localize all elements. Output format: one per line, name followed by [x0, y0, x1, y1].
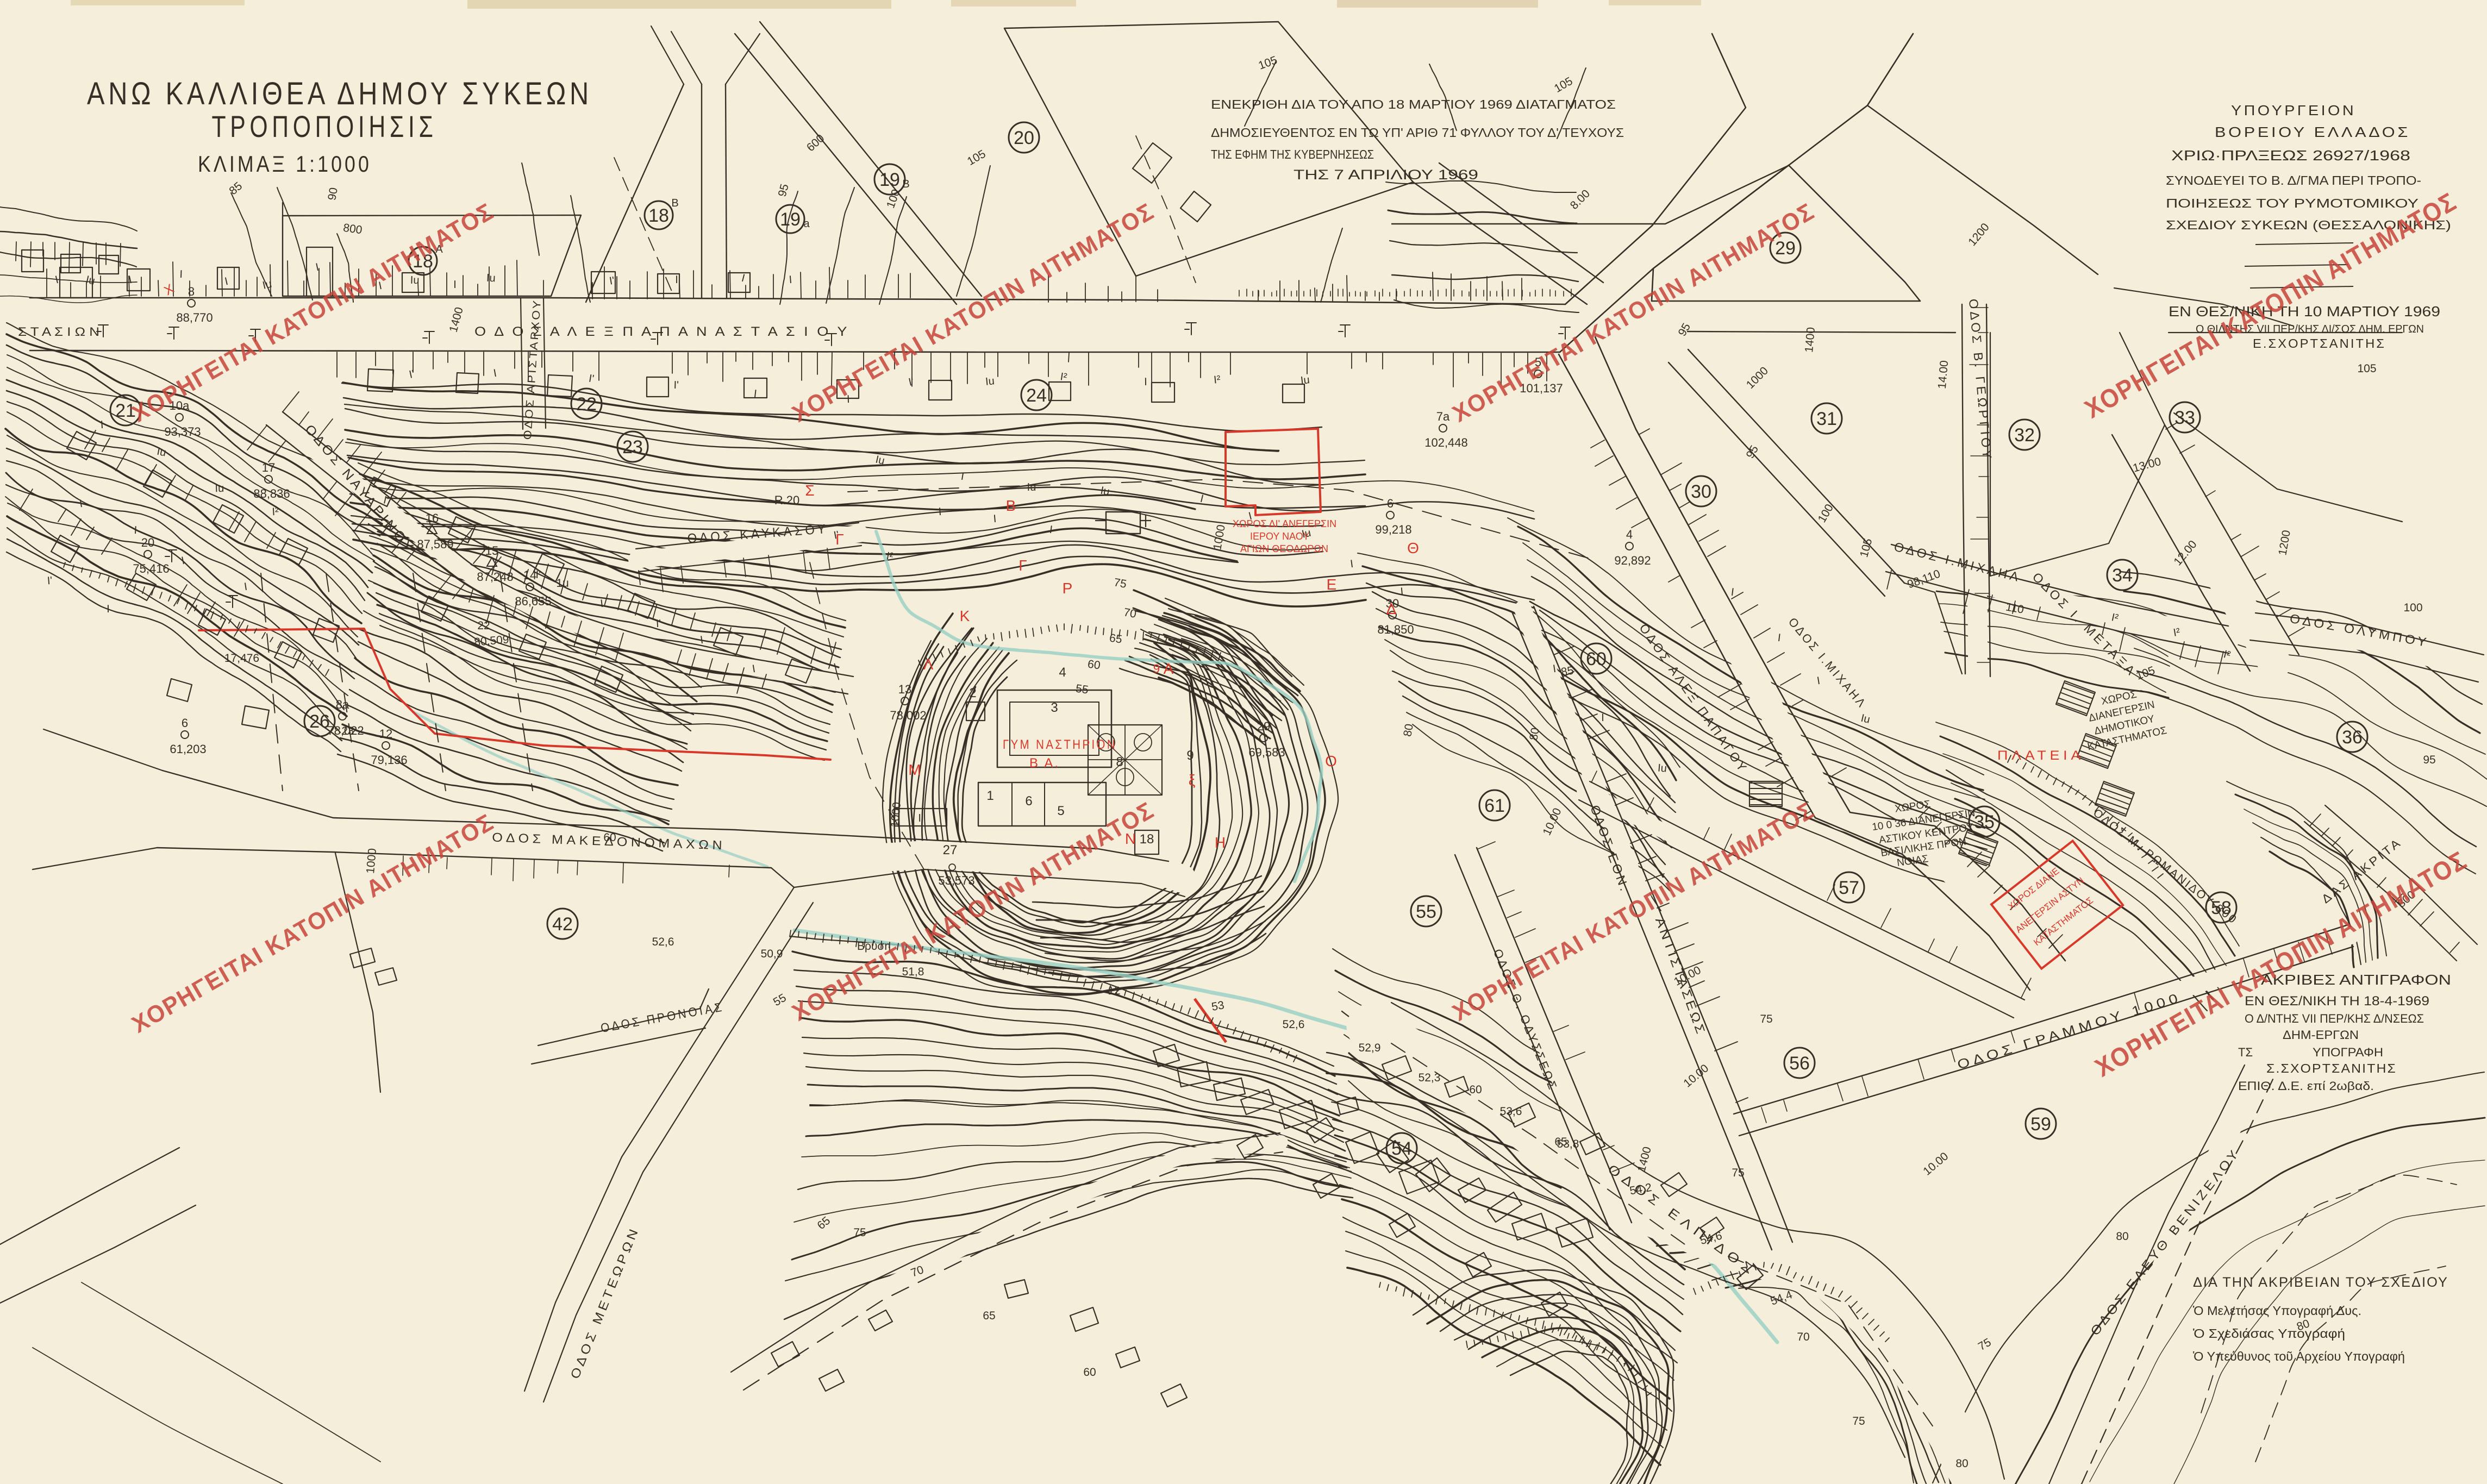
- svg-text:75: 75: [1113, 576, 1128, 591]
- svg-text:I: I: [107, 603, 110, 615]
- svg-text:69,583: 69,583: [1248, 746, 1285, 759]
- svg-text:Δ: Δ: [1386, 600, 1397, 617]
- svg-text:ΕΝ ΘΕΣ/ΝΙΚΗ ΤΗ 18-4-1969: ΕΝ ΘΕΣ/ΝΙΚΗ ΤΗ 18-4-1969: [2245, 994, 2429, 1009]
- svg-text:79,136: 79,136: [371, 753, 407, 767]
- svg-text:ΠΛΑΤΕΙΑ: ΠΛΑΤΕΙΑ: [1997, 748, 2084, 763]
- svg-text:34: 34: [2112, 565, 2133, 586]
- svg-text:Γ: Γ: [835, 531, 843, 548]
- svg-text:87,248: 87,248: [477, 570, 513, 584]
- svg-text:Iu: Iu: [1657, 762, 1667, 774]
- svg-text:ΚΛΙΜΑΞ 1:1000: ΚΛΙΜΑΞ 1:1000: [198, 151, 372, 177]
- svg-text:23: 23: [622, 437, 643, 458]
- svg-text:B: B: [902, 178, 909, 190]
- svg-text:Iu: Iu: [1027, 481, 1036, 493]
- svg-text:9: 9: [1153, 662, 1160, 675]
- svg-text:27: 27: [943, 843, 958, 857]
- svg-text:ΤΗΣ ΕΦΗΜ ΤΗΣ ΚΥΒΕΡΝΗΣΕΩΣ: ΤΗΣ ΕΦΗΜ ΤΗΣ ΚΥΒΕΡΝΗΣΕΩΣ: [1211, 147, 1374, 161]
- svg-text:Ὁ Υπεύθυνος τοῦ Αρχείου Υπογρα: Ὁ Υπεύθυνος τοῦ Αρχείου Υπογραφή: [2193, 1349, 2405, 1363]
- svg-text:Σ.ΣΧΟΡΤΣΑΝΙΤΗΣ: Σ.ΣΧΟΡΤΣΑΝΙΤΗΣ: [2266, 1061, 2397, 1075]
- svg-text:I: I: [179, 268, 183, 280]
- svg-text:65: 65: [1554, 1136, 1567, 1148]
- svg-text:1400: 1400: [1803, 327, 1817, 353]
- svg-text:ΤΣ: ΤΣ: [2238, 1045, 2253, 1059]
- svg-text:Λ: Λ: [923, 656, 934, 673]
- svg-text:I: I: [453, 279, 457, 291]
- svg-text:Β: Β: [1006, 497, 1016, 514]
- svg-text:75,416: 75,416: [133, 562, 169, 575]
- svg-text:70: 70: [1123, 606, 1138, 621]
- svg-text:22: 22: [477, 619, 490, 632]
- svg-text:I': I': [535, 569, 541, 581]
- svg-text:ΓΥΜ ΝΑΣΤΗΡΙΟΝ: ΓΥΜ ΝΑΣΤΗΡΙΟΝ: [1003, 737, 1117, 752]
- svg-text:18: 18: [648, 205, 669, 226]
- svg-text:88,770: 88,770: [176, 311, 213, 324]
- svg-text:I: I: [134, 524, 138, 536]
- svg-text:Θ: Θ: [1407, 540, 1419, 556]
- svg-text:1: 1: [986, 788, 993, 803]
- svg-text:24: 24: [1026, 385, 1047, 406]
- svg-text:65: 65: [1109, 632, 1123, 646]
- svg-text:75: 75: [853, 1226, 866, 1239]
- svg-text:ΑΝΩ ΚΑΛΛΙΘΕΑ ΔΗΜΟΥ ΣΥΚΕΩΝ: ΑΝΩ ΚΑΛΛΙΘΕΑ ΔΗΜΟΥ ΣΥΚΕΩΝ: [87, 76, 592, 111]
- svg-text:12: 12: [379, 727, 392, 741]
- svg-text:81,850: 81,850: [1377, 623, 1414, 636]
- svg-text:17,476: 17,476: [224, 652, 259, 665]
- svg-text:Γ: Γ: [1018, 557, 1027, 574]
- svg-text:B: B: [671, 197, 678, 209]
- svg-text:60: 60: [1469, 1084, 1482, 1096]
- svg-text:88,836: 88,836: [253, 487, 290, 500]
- svg-text:ΤΡΟΠΟΠΟΙΗΣΙΣ: ΤΡΟΠΟΠΟΙΗΣΙΣ: [212, 109, 438, 143]
- svg-text:14.00: 14.00: [1936, 360, 1951, 389]
- svg-text:105: 105: [2357, 362, 2376, 375]
- svg-text:Κ: Κ: [960, 608, 970, 624]
- svg-text:Μ: Μ: [908, 761, 921, 778]
- svg-text:Iu: Iu: [985, 375, 995, 388]
- svg-text:6: 6: [1025, 794, 1032, 809]
- svg-text:23: 23: [341, 725, 354, 737]
- svg-text:35: 35: [1974, 812, 1995, 832]
- svg-text:99,218: 99,218: [1375, 523, 1411, 536]
- svg-text:Iu: Iu: [486, 272, 496, 285]
- svg-text:42: 42: [552, 914, 573, 935]
- svg-text:Ο Δ/ΝΤΗΣ VII ΠΕΡ/ΚΗΣ Δ/ΝΣΕΩΣ: Ο Δ/ΝΤΗΣ VII ΠΕΡ/ΚΗΣ Δ/ΝΣΕΩΣ: [2245, 1012, 2424, 1025]
- svg-text:3: 3: [1051, 700, 1058, 715]
- svg-text:Ε: Ε: [1327, 576, 1337, 593]
- svg-text:26: 26: [309, 711, 330, 732]
- svg-text:51,8: 51,8: [902, 966, 924, 978]
- svg-text:14: 14: [523, 568, 536, 582]
- svg-text:54: 54: [1391, 1138, 1412, 1159]
- svg-text:Ε.ΣΧΟΡΤΣΑΝΙΤΗΣ: Ε.ΣΧΟΡΤΣΑΝΙΤΗΣ: [2253, 336, 2386, 350]
- svg-text:30: 30: [1691, 481, 1711, 502]
- svg-text:15: 15: [485, 544, 498, 558]
- svg-text:60: 60: [1586, 649, 1607, 669]
- svg-text:Iu: Iu: [215, 483, 224, 494]
- svg-text:57: 57: [1839, 878, 1859, 898]
- svg-text:52,6: 52,6: [652, 936, 674, 948]
- svg-text:52,6: 52,6: [1283, 1018, 1305, 1031]
- svg-text:90: 90: [326, 186, 340, 201]
- svg-text:ΔΙΑ ΤΗΝ ΑΚΡΙΒΕΙΑΝ ΤΟΥ ΣΧΕΔΙΟΥ: ΔΙΑ ΤΗΝ ΑΚΡΙΒΕΙΑΝ ΤΟΥ ΣΧΕΔΙΟΥ: [2193, 1275, 2448, 1290]
- svg-text:I²: I²: [1213, 373, 1221, 386]
- svg-text:7a: 7a: [1436, 410, 1450, 423]
- svg-text:60: 60: [1087, 658, 1101, 672]
- svg-text:8: 8: [188, 285, 195, 298]
- svg-text:a: a: [803, 218, 810, 230]
- svg-text:55: 55: [1075, 682, 1089, 697]
- svg-text:53,573: 53,573: [938, 874, 974, 887]
- svg-text:8a: 8a: [336, 698, 349, 711]
- svg-text:ΤΗΣ 7 ΑΠΡΙΛΙΟΥ 1969: ΤΗΣ 7 ΑΠΡΙΛΙΟΥ 1969: [1294, 167, 1478, 183]
- svg-text:ΧΡΙΩ·ΠΡΛΞΕΩΣ 26927/1968: ΧΡΙΩ·ΠΡΛΞΕΩΣ 26927/1968: [2171, 147, 2410, 164]
- svg-text:ξ: ξ: [1189, 772, 1196, 788]
- svg-text:I²: I²: [272, 506, 279, 518]
- svg-text:ΔΗΜ-ΕΡΓΩΝ: ΔΗΜ-ΕΡΓΩΝ: [2283, 1028, 2359, 1042]
- svg-text:61: 61: [1484, 796, 1505, 816]
- svg-text:ΠΟΙΗΣΕΩΣ ΤΟΥ ΡΥΜΟΤΟΜΙΚΟΥ: ΠΟΙΗΣΕΩΣ ΤΟΥ ΡΥΜΟΤΟΜΙΚΟΥ: [2166, 196, 2419, 210]
- svg-text:75: 75: [1760, 1013, 1772, 1025]
- svg-text:50,9: 50,9: [761, 948, 783, 960]
- svg-text:I': I': [655, 618, 661, 630]
- svg-text:6: 6: [1387, 497, 1394, 510]
- svg-text:ΥΠΟΥΡΓΕΙΟΝ: ΥΠΟΥΡΓΕΙΟΝ: [2231, 102, 2356, 118]
- svg-text:I: I: [675, 274, 678, 286]
- svg-text:ΣΥΝΟΔΕΥΕΙ ΤΟ Β. Δ/ΓΜΑ ΠΕΡΙ ΤΡΟ: ΣΥΝΟΔΕΥΕΙ ΤΟ Β. Δ/ΓΜΑ ΠΕΡΙ ΤΡΟΠΟ-: [2166, 173, 2421, 187]
- svg-text:I': I': [673, 379, 679, 391]
- svg-text:1u: 1u: [556, 577, 568, 590]
- svg-text:ΕΠΙΘ. Δ.Ε. επί 2ωβαδ.: ΕΠΙΘ. Δ.Ε. επί 2ωβαδ.: [2238, 1079, 2374, 1093]
- svg-text:2: 2: [969, 686, 976, 700]
- svg-text:R.20: R.20: [774, 493, 799, 507]
- svg-text:I': I': [918, 812, 923, 824]
- svg-text:20: 20: [141, 536, 154, 549]
- svg-text:93,373: 93,373: [164, 425, 201, 439]
- svg-text:53: 53: [1210, 999, 1225, 1013]
- svg-text:Iu: Iu: [410, 274, 420, 286]
- svg-text:4: 4: [1626, 528, 1633, 541]
- svg-text:80: 80: [1527, 727, 1542, 741]
- svg-text:4: 4: [1059, 665, 1066, 680]
- svg-text:ΒΟΡΕΙΟΥ ΕΛΛΑΔΟΣ: ΒΟΡΕΙΟΥ ΕΛΛΑΔΟΣ: [2215, 124, 2410, 140]
- svg-text:53,6: 53,6: [1500, 1105, 1522, 1118]
- svg-text:I: I: [1144, 376, 1147, 388]
- svg-text:17: 17: [262, 461, 275, 474]
- svg-text:22: 22: [576, 394, 597, 415]
- svg-text:ΕΝ ΘΕΣ/ΝΙΚΗ ΤΗ 10 ΜΑΡΤΙΟΥ 196: ΕΝ ΘΕΣ/ΝΙΚΗ ΤΗ 10 ΜΑΡΤΙΟΥ 1969: [2169, 303, 2440, 320]
- svg-text:Iu: Iu: [1300, 374, 1310, 387]
- svg-text:19: 19: [780, 209, 801, 230]
- svg-text:65: 65: [983, 1310, 995, 1322]
- svg-text:61,203: 61,203: [170, 742, 206, 756]
- svg-text:ΕΝΕΚΡΙΘΗ ΔΙΑ ΤΟΥ ΑΠΟ 18 ΜΑΡΤ: ΕΝΕΚΡΙΘΗ ΔΙΑ ΤΟΥ ΑΠΟ 18 ΜΑΡΤΙΟΥ 1969 ΔΙΑ…: [1211, 97, 1616, 111]
- svg-text:80: 80: [1401, 723, 1416, 737]
- svg-text:70: 70: [1797, 1331, 1809, 1343]
- svg-text:78,002: 78,002: [890, 709, 926, 722]
- svg-text:I': I': [47, 575, 53, 587]
- svg-text:Η: Η: [1215, 834, 1226, 851]
- svg-text:92,892: 92,892: [1614, 554, 1651, 567]
- svg-text:18: 18: [1140, 832, 1154, 847]
- svg-text:19: 19: [879, 170, 900, 190]
- svg-text:86,655: 86,655: [515, 594, 551, 608]
- svg-text:33: 33: [2174, 408, 2195, 428]
- svg-text:Σ Τ Α Σ Ι Ω Ν: Σ Τ Α Σ Ι Ω Ν: [18, 325, 99, 339]
- svg-text:59: 59: [2030, 1114, 2051, 1135]
- svg-text:Ο: Ο: [1325, 753, 1337, 769]
- svg-text:56: 56: [1789, 1053, 1810, 1074]
- svg-text:95: 95: [2423, 754, 2435, 766]
- svg-text:5: 5: [1057, 804, 1064, 818]
- svg-text:52,3: 52,3: [1419, 1072, 1441, 1084]
- svg-text:12: 12: [1108, 985, 1120, 997]
- svg-text:8: 8: [1116, 755, 1123, 769]
- svg-text:Σ: Σ: [805, 482, 814, 499]
- svg-text:6: 6: [182, 716, 188, 730]
- svg-text:29: 29: [1257, 719, 1270, 733]
- svg-text:ΔΗΜΟΣΙΕΥΘΕΝΤΟΣ ΕΝ ΤΩ ΥΠ' ΑΡΙΘ: ΔΗΜΟΣΙΕΥΘΕΝΤΟΣ ΕΝ ΤΩ ΥΠ' ΑΡΙΘ 71 ΦΥΛΛΟΥ …: [1211, 126, 1624, 140]
- svg-text:31: 31: [1816, 409, 1837, 429]
- svg-text:102,448: 102,448: [1424, 436, 1468, 449]
- svg-text:Ρ: Ρ: [1063, 580, 1073, 597]
- svg-text:ΥΠΟΓΡΑΦΗ: ΥΠΟΓΡΑΦΗ: [2313, 1045, 2383, 1059]
- svg-text:Ὁ Σχεδιάσας Υπογραφή: Ὁ Σχεδιάσας Υπογραφή: [2193, 1326, 2345, 1341]
- svg-text:100: 100: [2403, 602, 2422, 614]
- svg-text:80: 80: [2116, 1230, 2128, 1243]
- svg-text:ΙΕΡΟΥ ΝΑΟΥ: ΙΕΡΟΥ ΝΑΟΥ: [1250, 531, 1309, 542]
- svg-text:13: 13: [898, 682, 911, 696]
- svg-text:1000: 1000: [889, 802, 903, 828]
- svg-text:9: 9: [1186, 748, 1193, 763]
- svg-text:Β Α.: Β Α.: [1029, 756, 1060, 771]
- svg-text:60: 60: [1083, 1366, 1096, 1379]
- svg-text:52,9: 52,9: [1359, 1042, 1381, 1054]
- svg-text:1000: 1000: [364, 848, 379, 874]
- svg-text:ΧΩΡΟΣ ΔΙ' ΑΝΕΓΕΡΣΙΝ: ΧΩΡΟΣ ΔΙ' ΑΝΕΓΕΡΣΙΝ: [1233, 518, 1336, 529]
- svg-text:I: I: [1601, 712, 1604, 724]
- svg-text:55: 55: [1416, 901, 1436, 922]
- svg-text:20: 20: [1014, 128, 1034, 148]
- svg-text:32: 32: [2014, 425, 2035, 446]
- svg-text:75: 75: [1852, 1415, 1865, 1427]
- svg-text:800: 800: [342, 222, 363, 237]
- svg-text:Ὁ Μελετήσας Υπογραφή Δυς.: Ὁ Μελετήσας Υπογραφή Δυς.: [2193, 1304, 2361, 1318]
- svg-text:75: 75: [1732, 1167, 1744, 1179]
- svg-text:36: 36: [2342, 727, 2363, 748]
- svg-text:ΑΓΙΩΝ ΘΕΟΔΩΡΩΝ: ΑΓΙΩΝ ΘΕΟΔΩΡΩΝ: [1240, 543, 1328, 554]
- svg-text:85: 85: [1560, 664, 1574, 679]
- svg-text:80: 80: [1955, 1457, 1968, 1470]
- svg-text:87,589: 87,589: [417, 537, 453, 551]
- svg-text:Α: Α: [1164, 660, 1174, 677]
